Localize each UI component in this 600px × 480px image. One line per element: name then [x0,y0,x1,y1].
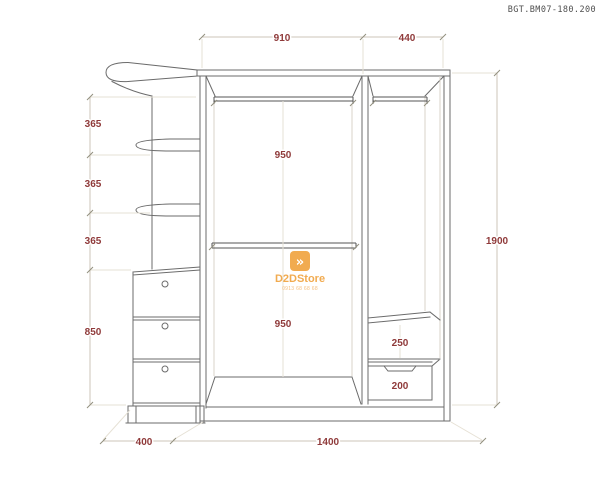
main-compartment [209,97,359,250]
drawer-knob-2 [162,323,168,329]
dim-label-910: 910 [274,33,291,44]
left-wall [200,76,206,423]
curved-shelf-2 [136,204,200,216]
watermark-phone: 0913 68 68 68 [282,286,318,292]
dim-label-200: 200 [392,381,409,392]
lower-shelf [368,359,440,362]
bottom-extension-lines [103,410,482,440]
dim-label-365b: 365 [85,179,102,190]
watermark-brand: D2DStore [275,273,325,285]
drawer-knob-1 [162,281,168,287]
dim-label-440: 440 [399,33,416,44]
rod-middle-end-ticks [209,244,359,250]
drawer-knob-3 [162,366,168,372]
top-depth-lines [206,76,444,96]
base-plinth [200,407,450,421]
cabinet-floor [206,377,361,404]
rounded-top-cap [106,63,197,82]
dimension-center: 950 950 [275,101,292,377]
main-cabinet [197,70,450,423]
drawer-box [133,267,200,406]
chevrons-icon: » [296,255,304,270]
top-cap-underside [112,82,152,97]
wardrobe-dimension-diagram: BGT.BM07-180.200 [0,0,600,480]
dim-label-950b: 950 [275,319,292,330]
top-panel [197,70,450,76]
right-wall [444,76,450,421]
dim-label-1400: 1400 [317,437,340,448]
upper-shelf [368,312,440,323]
drawer-stack [126,267,205,423]
dimension-left: 365 365 365 850 [85,94,196,408]
dim-label-365a: 365 [85,119,102,130]
drawing-canvas: BGT.BM07-180.200 [0,0,600,480]
dim-label-950a: 950 [275,150,292,161]
document-code: BGT.BM07-180.200 [508,5,596,15]
interior-depth-lines [214,76,440,376]
dim-label-250: 250 [392,338,409,349]
dim-label-400: 400 [136,437,153,448]
dimension-bottom: 400 1400 [100,410,486,448]
drawer-legs [126,406,205,423]
dimension-right: 1900 [452,70,509,408]
hanging-rod-middle [212,243,356,248]
dim-label-365c: 365 [85,236,102,247]
dim-label-1900: 1900 [486,236,509,247]
top-extension-lines [202,39,443,74]
center-divider [362,76,368,404]
hanging-rod-right [373,97,427,104]
small-drawer [368,360,439,400]
dimension-top: 910 440 [199,33,446,74]
curved-shelf-1 [136,139,200,151]
right-compartment [368,97,440,400]
watermark: » D2DStore 0913 68 68 68 [275,251,325,292]
left-shelf-unit [106,63,200,270]
dim-label-850: 850 [85,327,102,338]
